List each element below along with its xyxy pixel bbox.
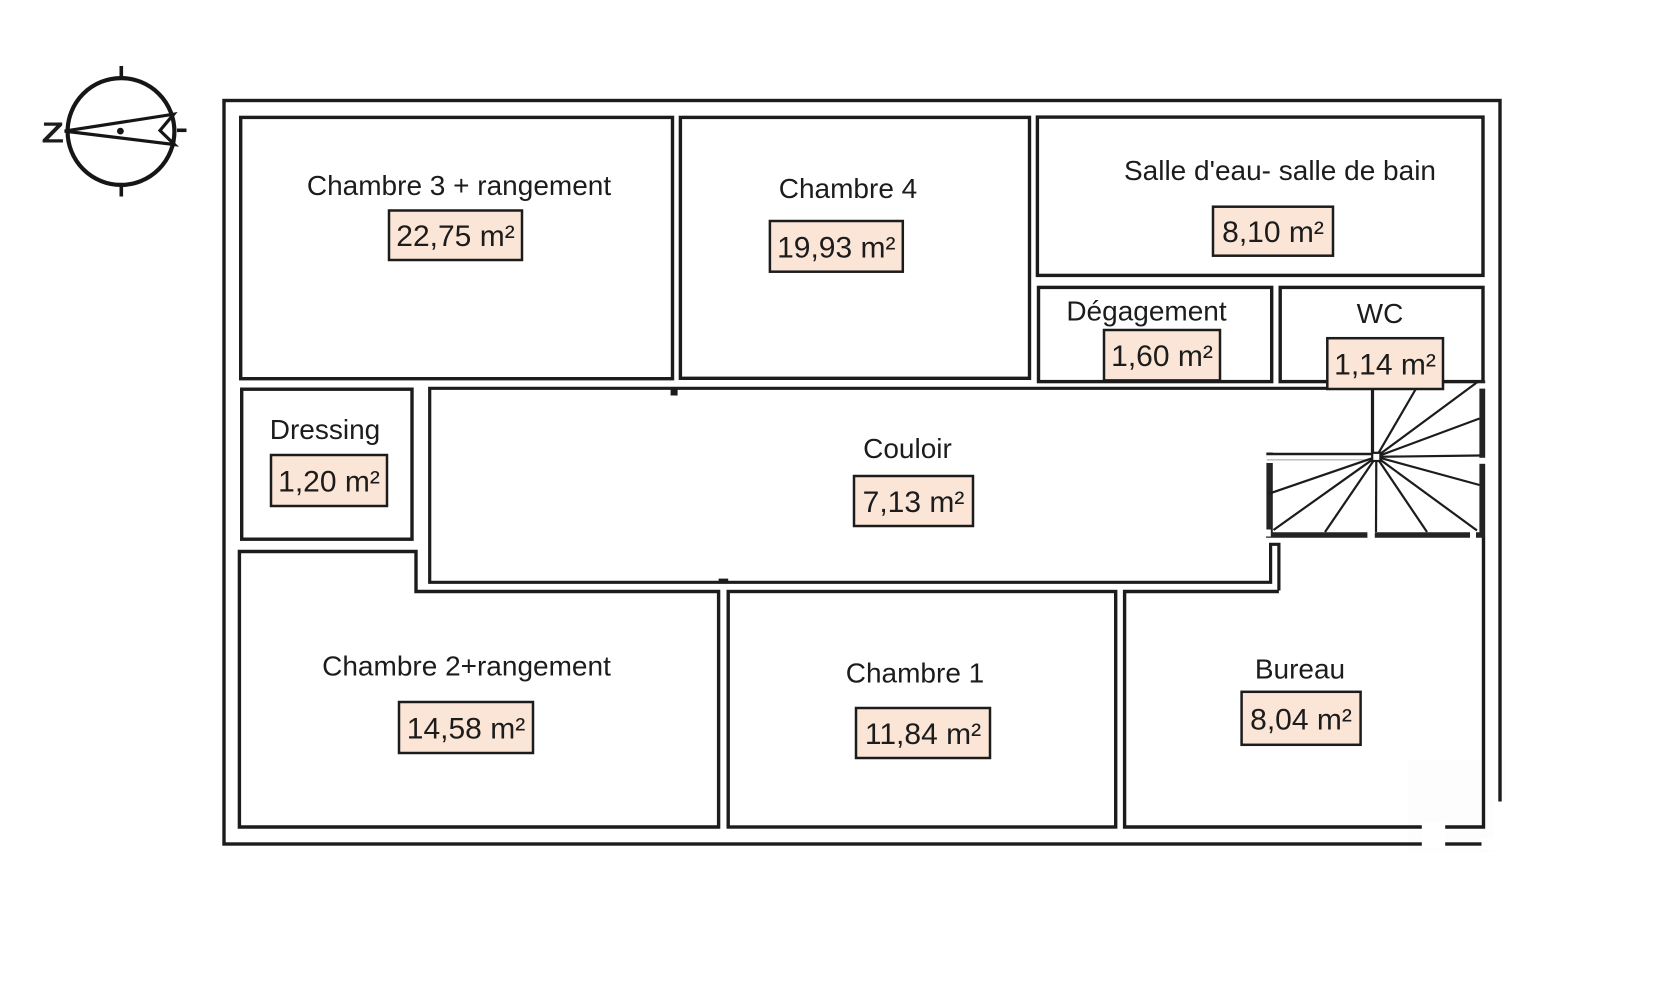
svg-text:Bureau: Bureau: [1255, 654, 1345, 685]
svg-text:Chambre 1: Chambre 1: [846, 658, 985, 689]
svg-text:Dressing: Dressing: [270, 414, 380, 445]
svg-text:WC: WC: [1357, 298, 1404, 329]
svg-text:1,14 m²: 1,14 m²: [1334, 349, 1436, 382]
svg-text:Couloir: Couloir: [863, 433, 952, 464]
svg-text:7,13 m²: 7,13 m²: [863, 486, 965, 519]
svg-text:19,93 m²: 19,93 m²: [777, 232, 895, 265]
svg-text:Z: Z: [42, 118, 65, 150]
svg-text:Chambre 4: Chambre 4: [779, 173, 918, 204]
svg-text:8,10 m²: 8,10 m²: [1222, 216, 1324, 249]
svg-text:Chambre 2+rangement: Chambre 2+rangement: [322, 651, 611, 682]
svg-text:22,75 m²: 22,75 m²: [396, 220, 514, 253]
svg-text:1,60 m²: 1,60 m²: [1111, 340, 1213, 373]
svg-text:1,20 m²: 1,20 m²: [278, 466, 380, 499]
svg-text:14,58 m²: 14,58 m²: [407, 713, 525, 746]
svg-text:Dégagement: Dégagement: [1066, 296, 1227, 327]
svg-text:8,04 m²: 8,04 m²: [1250, 704, 1352, 737]
svg-text:11,84 m²: 11,84 m²: [865, 718, 981, 751]
svg-text:Salle d'eau- salle de bain: Salle d'eau- salle de bain: [1124, 155, 1436, 186]
svg-text:Chambre 3 + rangement: Chambre 3 + rangement: [307, 170, 612, 201]
